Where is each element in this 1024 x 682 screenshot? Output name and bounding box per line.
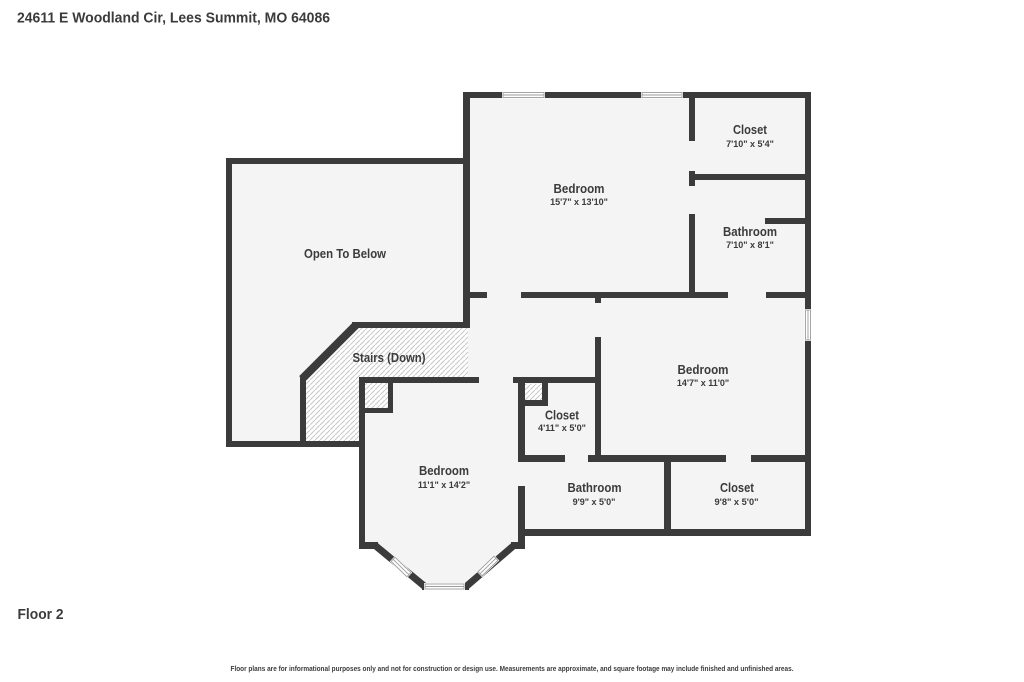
svg-text:14'7" x 11'0": 14'7" x 11'0": [677, 378, 729, 388]
svg-text:Closet: Closet: [545, 409, 580, 423]
svg-text:11'1" x 14'2": 11'1" x 14'2": [418, 480, 470, 490]
svg-text:Floor 2: Floor 2: [18, 607, 64, 623]
svg-text:Floor plans are for informatio: Floor plans are for informational purpos…: [231, 664, 794, 673]
svg-text:Bathroom: Bathroom: [568, 481, 622, 495]
svg-text:Closet: Closet: [733, 123, 768, 137]
svg-text:9'8" x 5'0": 9'8" x 5'0": [715, 497, 759, 507]
svg-text:Bathroom: Bathroom: [723, 225, 777, 239]
svg-text:Stairs (Down): Stairs (Down): [353, 351, 426, 365]
svg-text:Bedroom: Bedroom: [419, 464, 469, 478]
svg-text:24611 E Woodland Cir, Lees Sum: 24611 E Woodland Cir, Lees Summit, MO 64…: [17, 11, 330, 27]
svg-text:15'7" x 13'10": 15'7" x 13'10": [550, 197, 608, 207]
svg-text:Bedroom: Bedroom: [678, 363, 729, 377]
svg-text:Open To Below: Open To Below: [304, 247, 386, 261]
svg-text:Bedroom: Bedroom: [554, 182, 605, 196]
svg-text:9'9" x 5'0": 9'9" x 5'0": [573, 497, 616, 507]
svg-text:Closet: Closet: [720, 481, 755, 495]
svg-text:7'10" x 8'1": 7'10" x 8'1": [726, 240, 774, 250]
svg-text:4'11" x 5'0": 4'11" x 5'0": [538, 423, 586, 433]
svg-text:7'10" x 5'4": 7'10" x 5'4": [726, 139, 774, 149]
